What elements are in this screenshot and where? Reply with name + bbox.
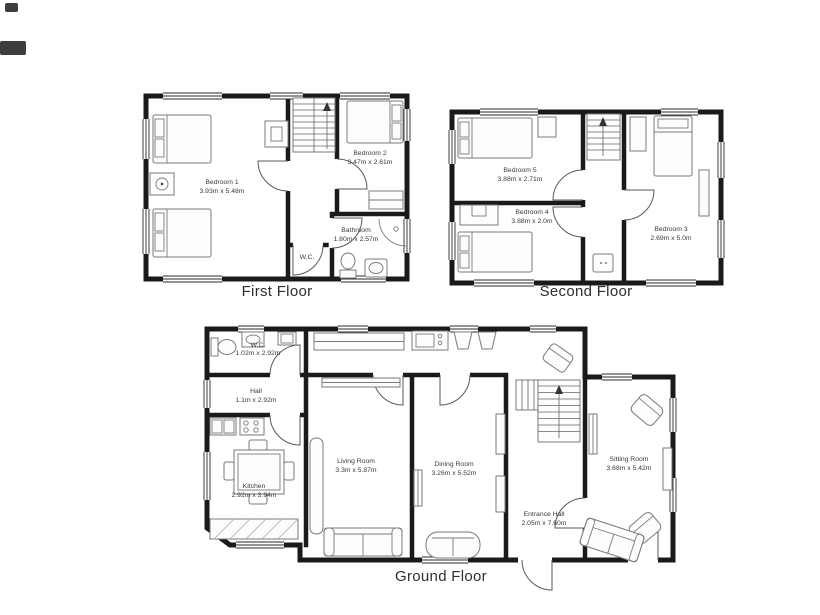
bedside-table-icon xyxy=(150,173,174,195)
second-floor-plan: Bedroom 5 3.88m x 2.71m Bedroom 4 3.88m … xyxy=(446,102,726,288)
room-dims: 3.47m x 2.61m xyxy=(348,159,393,166)
room-label: Bedroom 4 xyxy=(515,209,548,216)
armchair-icon xyxy=(542,342,575,373)
hob-icon xyxy=(240,418,264,435)
wardrobe-icon xyxy=(630,117,646,151)
room-dims: 3.88m x 2.71m xyxy=(498,176,543,183)
room-label: Bedroom 5 xyxy=(503,167,536,174)
room-label: Bedroom 1 xyxy=(205,179,238,186)
room-dims: 1.1m x 2.92m xyxy=(235,397,277,404)
sink-icon xyxy=(365,259,387,277)
bed-icon xyxy=(654,116,692,176)
shelf-unit-icon xyxy=(314,333,404,350)
floor-caption: Ground Floor xyxy=(203,568,679,585)
ground-floor-plan: W.C. 1.02m x 2.92m Hall 1.1m x 2.92m Kit… xyxy=(200,320,678,596)
chimney-breast-icon xyxy=(265,121,288,147)
crop-artifact-mark xyxy=(0,41,26,55)
room-dims: 3.88m x 2.0m xyxy=(511,218,553,225)
room-dims: 2.05m x 7.60m xyxy=(522,520,567,527)
bed-icon xyxy=(458,118,532,158)
utility-sink-icon xyxy=(412,331,448,350)
room-dims: 2.92m x 3.94m xyxy=(232,492,277,499)
stool-icon xyxy=(454,332,496,349)
floorplan-page: Bedroom 1 3.93m x 5.48m Bedroom 2 3.47m … xyxy=(0,0,820,615)
staircase-icon xyxy=(293,98,335,152)
room-dims: 3.3m x 5.87m xyxy=(335,467,377,474)
room-dims: 1.02m x 2.92m xyxy=(236,350,281,357)
toilet-icon xyxy=(211,338,236,356)
sideboard-icon xyxy=(663,448,672,490)
floor-caption: First Floor xyxy=(141,283,413,300)
room-label: Entrance Hall xyxy=(524,511,565,518)
room-dims: 3.93m x 5.48m xyxy=(200,188,245,195)
room-label: Kitchen xyxy=(243,483,266,490)
basin-icon xyxy=(278,332,296,345)
sofa-icon xyxy=(324,528,402,556)
radiator-icon xyxy=(589,414,597,454)
bed-icon xyxy=(153,115,211,163)
room-label: Sitting Room xyxy=(610,456,649,463)
bed-icon xyxy=(458,232,532,272)
heater-icon xyxy=(593,254,613,272)
staircase-icon xyxy=(587,114,620,160)
room-dims: 3.68m x 5.42m xyxy=(607,465,652,472)
room-dims: 1.80m x 2.57m xyxy=(334,236,379,243)
radiator-icon xyxy=(414,470,422,506)
sideboard-icon xyxy=(496,476,505,512)
crop-artifact-mark xyxy=(5,3,18,12)
bed-icon xyxy=(153,209,211,257)
toilet-icon xyxy=(340,253,356,278)
armchair-icon xyxy=(629,393,665,428)
room-dims: 2.69m x 5.0m xyxy=(650,235,692,242)
chest-icon xyxy=(538,117,556,137)
staircase-icon xyxy=(516,380,580,442)
room-dims: 3.26m x 5.52m xyxy=(432,470,477,477)
room-label: Bedroom 3 xyxy=(654,226,687,233)
room-label: W.C. xyxy=(300,254,315,261)
room-label: Dining Room xyxy=(434,461,474,468)
room-label: Hall xyxy=(250,388,262,395)
bed-icon xyxy=(347,101,403,143)
radiator-icon xyxy=(322,378,400,387)
room-label: Living Room xyxy=(337,458,375,465)
tall-cupboard-icon xyxy=(310,438,323,534)
room-label: Bedroom 2 xyxy=(353,150,386,157)
first-floor-plan: Bedroom 1 3.93m x 5.48m Bedroom 2 3.47m … xyxy=(141,91,413,291)
wardrobe-icon xyxy=(369,191,403,209)
room-label: Bathroom xyxy=(341,227,371,234)
chimney-recess-icon xyxy=(460,205,498,225)
loveseat-icon xyxy=(426,532,480,558)
sideboard-icon xyxy=(699,170,709,216)
floor-caption: Second Floor xyxy=(446,283,726,300)
sideboard-icon xyxy=(496,414,505,454)
kitchen-sink-icon xyxy=(210,418,236,435)
worktop-icon xyxy=(210,519,298,539)
room-label: W.C. xyxy=(251,342,266,349)
shower-icon xyxy=(379,219,406,246)
